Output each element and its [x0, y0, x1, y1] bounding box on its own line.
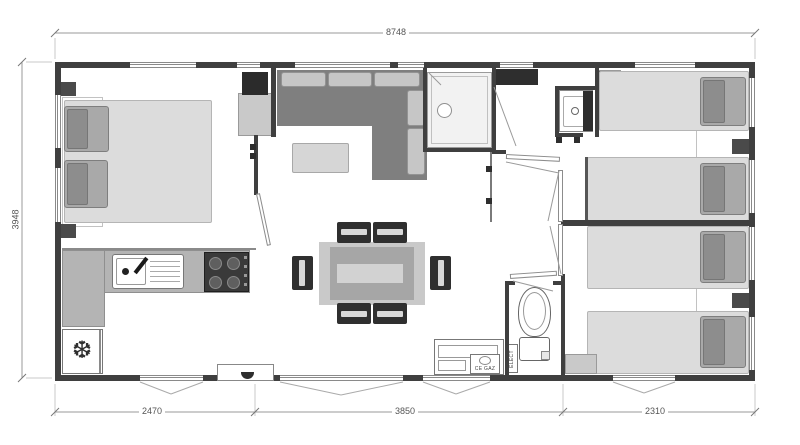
swing-hall-door	[506, 162, 559, 173]
wall-washroom-left	[555, 86, 559, 137]
flap-window-2a	[280, 382, 341, 395]
toilet-bowl-inner	[523, 292, 546, 330]
tick-bottom-4	[751, 408, 759, 416]
tick-bottom-3	[559, 408, 567, 416]
window-left-1	[55, 95, 61, 148]
wall-bedroom1-left-lower	[585, 157, 588, 221]
coffee-table	[292, 143, 349, 173]
flap-window-3b	[456, 382, 490, 394]
chair-left	[292, 256, 313, 290]
single-bed-4-pillow	[700, 316, 746, 368]
single-bed-3-pillow	[700, 231, 746, 283]
dining-table-runner	[337, 264, 403, 283]
window-top-3	[295, 62, 390, 68]
washbasin-tap	[571, 107, 579, 115]
shower-drain	[437, 103, 452, 118]
window-bottom-2	[280, 375, 403, 381]
sink-drain-dot	[122, 268, 129, 275]
burner-2	[227, 257, 240, 270]
bedroom2-door-leaf	[558, 224, 563, 276]
window-left-2	[55, 168, 61, 222]
burner-3	[209, 276, 222, 289]
bedside-shelf-bottom	[59, 224, 76, 238]
dimension-bottom-3: 2310	[642, 406, 668, 417]
chair-bottom-1	[337, 303, 371, 324]
swing-shower-door	[494, 87, 516, 146]
flap-window-1a	[140, 382, 171, 394]
flap-window-1b	[171, 382, 203, 394]
wall-wc-top-stub-right	[553, 281, 561, 285]
window-right-1	[749, 78, 755, 127]
wall-kitchen-edge	[62, 248, 256, 250]
wc-door-leaf	[510, 271, 557, 279]
wall-corridor-right-lower	[561, 274, 565, 375]
window-bottom-1	[140, 375, 203, 381]
tick-left-bottom	[18, 374, 26, 382]
nightstand-bottom-room	[732, 293, 749, 308]
kitchen-counter-left	[62, 250, 105, 327]
window-top-5	[500, 62, 533, 68]
burner-1	[209, 257, 222, 270]
window-top-6	[635, 62, 695, 68]
wall-washroom-top	[555, 86, 599, 90]
stove-knobs	[244, 256, 247, 288]
switch-masterwall-1	[250, 144, 256, 150]
chair-bottom-2	[373, 303, 407, 324]
wall-bedrooms-divider	[561, 220, 751, 226]
bedroom-bench	[565, 354, 597, 374]
electric-cabinet-label: ELECT	[509, 350, 515, 368]
floor-plan: ❆ ELECT CE GAZ	[0, 0, 800, 445]
gas-cabinet-label: CE GAZ	[471, 366, 499, 372]
wall-shower-right	[492, 68, 496, 152]
tick-left-top	[18, 58, 26, 66]
sofa-cushion-3	[374, 72, 420, 87]
gas-bottle-box: CE GAZ	[470, 354, 500, 374]
master-pillow-2	[64, 160, 108, 208]
tick-top-right	[751, 29, 759, 37]
nightstand-top-room	[732, 139, 749, 154]
burner-4	[227, 276, 240, 289]
flap-window-3a	[423, 382, 456, 394]
washbasin-mirror	[583, 91, 593, 131]
single-bed-2-pillow	[700, 163, 746, 215]
sink-drainboard	[150, 261, 180, 285]
tick-bottom-2	[251, 408, 259, 416]
wall-masterbed-upper	[271, 62, 276, 137]
window-right-3	[749, 227, 755, 280]
wall-wc-top-stub-left	[505, 281, 515, 285]
stud-washroom-1	[556, 137, 562, 143]
stud-hall-1	[486, 166, 492, 172]
dimension-bottom-2: 3850	[392, 406, 418, 417]
window-top-2	[237, 62, 260, 68]
bedside-shelf-top	[59, 82, 76, 96]
window-bottom-4	[613, 375, 675, 381]
stud-washroom-2	[574, 137, 580, 143]
sofa-cushion-1	[281, 72, 326, 87]
wall-shower-bottom	[423, 148, 496, 152]
gas-cabinet-drawer	[438, 360, 466, 371]
flap-window-2b	[341, 382, 403, 395]
single-bed-1-pillow	[700, 77, 746, 126]
dimension-left-height: 3948	[11, 206, 22, 232]
switch-masterwall-2	[250, 153, 256, 159]
stud-hall-2	[486, 198, 492, 204]
window-top-4	[398, 62, 424, 68]
tick-top-left	[51, 29, 59, 37]
gas-bottle-icon	[479, 356, 491, 365]
fridge-door-line	[99, 330, 101, 373]
masterbed-door-leaf	[256, 193, 271, 246]
chair-top-1	[337, 222, 371, 243]
tick-bottom-1	[51, 408, 59, 416]
sofa-cushion-2	[328, 72, 372, 87]
window-top-1	[130, 62, 196, 68]
flap-window-4a	[613, 382, 644, 393]
toilet-flush-button	[541, 351, 550, 360]
window-bottom-3	[423, 375, 490, 381]
tv-icon	[242, 72, 268, 95]
wall-bedroom1-left-upper	[595, 62, 599, 137]
tv-cabinet	[238, 93, 273, 136]
flap-window-4b	[644, 382, 675, 393]
wall-hall-left	[490, 152, 492, 222]
window-right-2	[749, 160, 755, 213]
chair-top-2	[373, 222, 407, 243]
wall-wc-left	[505, 281, 509, 375]
master-pillow-1	[64, 106, 109, 152]
bedroom1-door-leaf	[558, 170, 563, 222]
dimension-bottom-1: 2470	[139, 406, 165, 417]
wall-heater-unit	[496, 69, 538, 85]
fridge-snowflake-icon: ❆	[65, 334, 99, 368]
hall-door-leaf	[506, 154, 560, 162]
dimension-top-width: 8748	[383, 27, 409, 38]
window-right-4	[749, 317, 755, 370]
wall-shower-left	[423, 68, 427, 152]
wall-hall-top-stub	[492, 150, 506, 154]
chair-right	[430, 256, 451, 290]
